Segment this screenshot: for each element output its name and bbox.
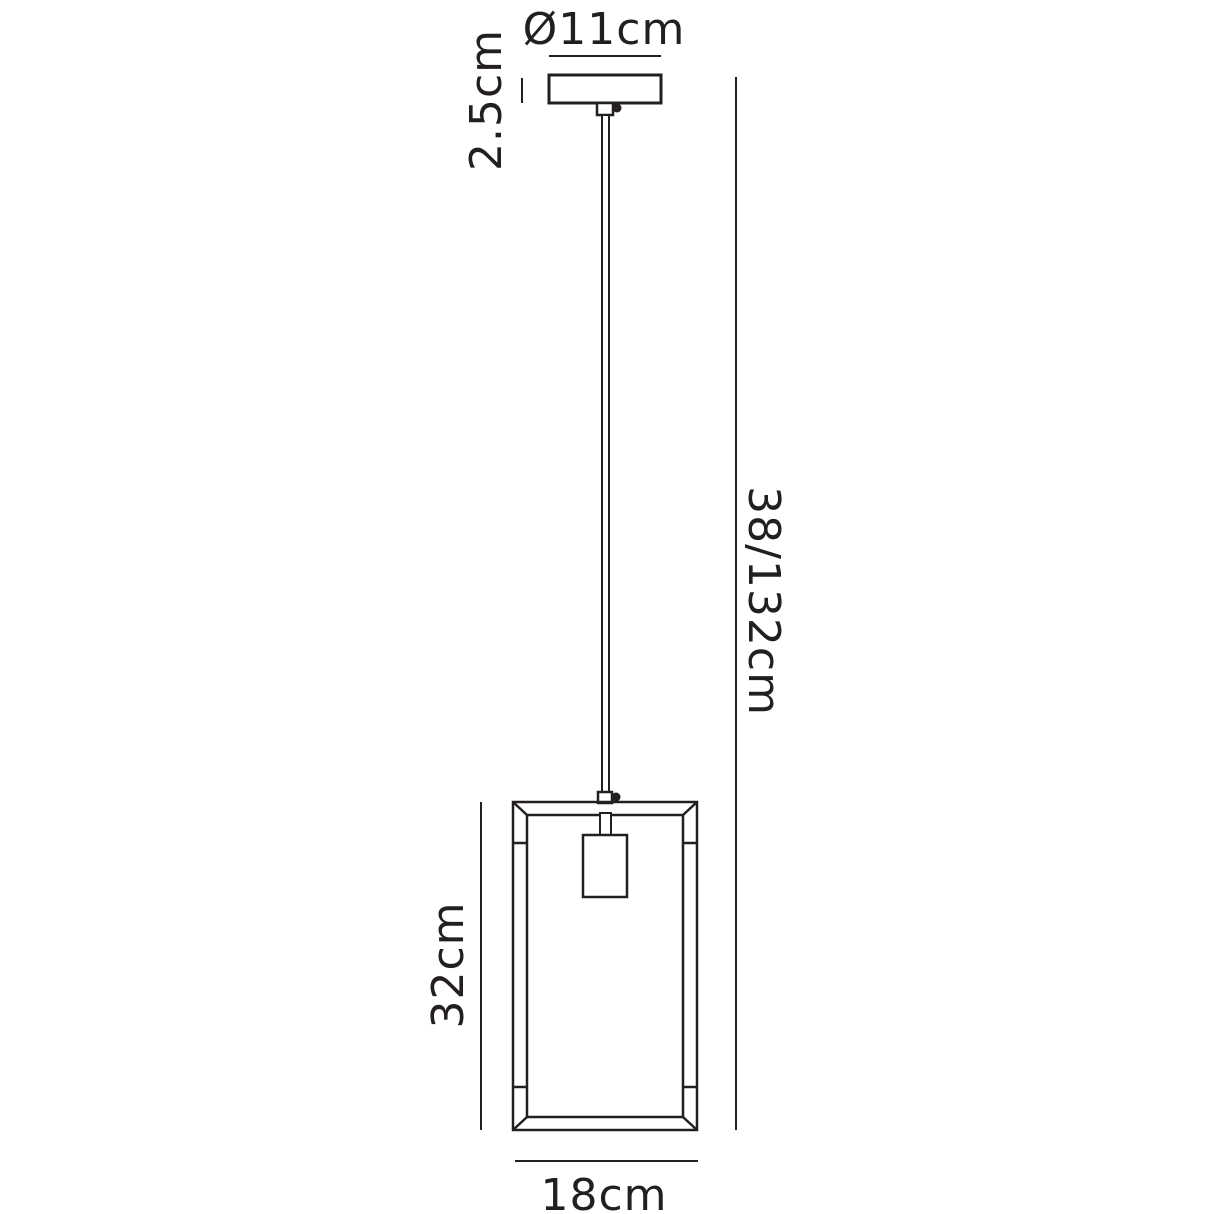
label-canopy-diameter: Ø11cm: [523, 4, 686, 55]
screw-dot-top: [613, 104, 622, 113]
mitre-joint-top-left: [513, 802, 527, 815]
lampholder-neck: [600, 813, 611, 835]
label-shade-width: 18cm: [540, 1170, 667, 1214]
screw-dot-bottom: [612, 793, 621, 802]
mitre-joint-top-right: [683, 802, 697, 815]
fixture-drawing: [513, 75, 697, 1130]
pendant-light-dimension-diagram: Ø11cm 2.5cm 38/132cm 32cm 18cm: [0, 0, 1214, 1214]
lampholder-body: [583, 835, 627, 897]
ceiling-plate: [549, 75, 661, 103]
suspension-rod: [602, 115, 609, 793]
diagram-canvas: Ø11cm 2.5cm 38/132cm 32cm 18cm: [0, 0, 1214, 1214]
mitre-joint-bottom-right: [683, 1117, 697, 1130]
label-overall-drop: 38/132cm: [738, 486, 789, 716]
mitre-joint-bottom-left: [513, 1117, 527, 1130]
label-canopy-height: 2.5cm: [461, 29, 512, 171]
label-shade-height: 32cm: [423, 901, 474, 1028]
rod-connector-top: [597, 103, 613, 115]
